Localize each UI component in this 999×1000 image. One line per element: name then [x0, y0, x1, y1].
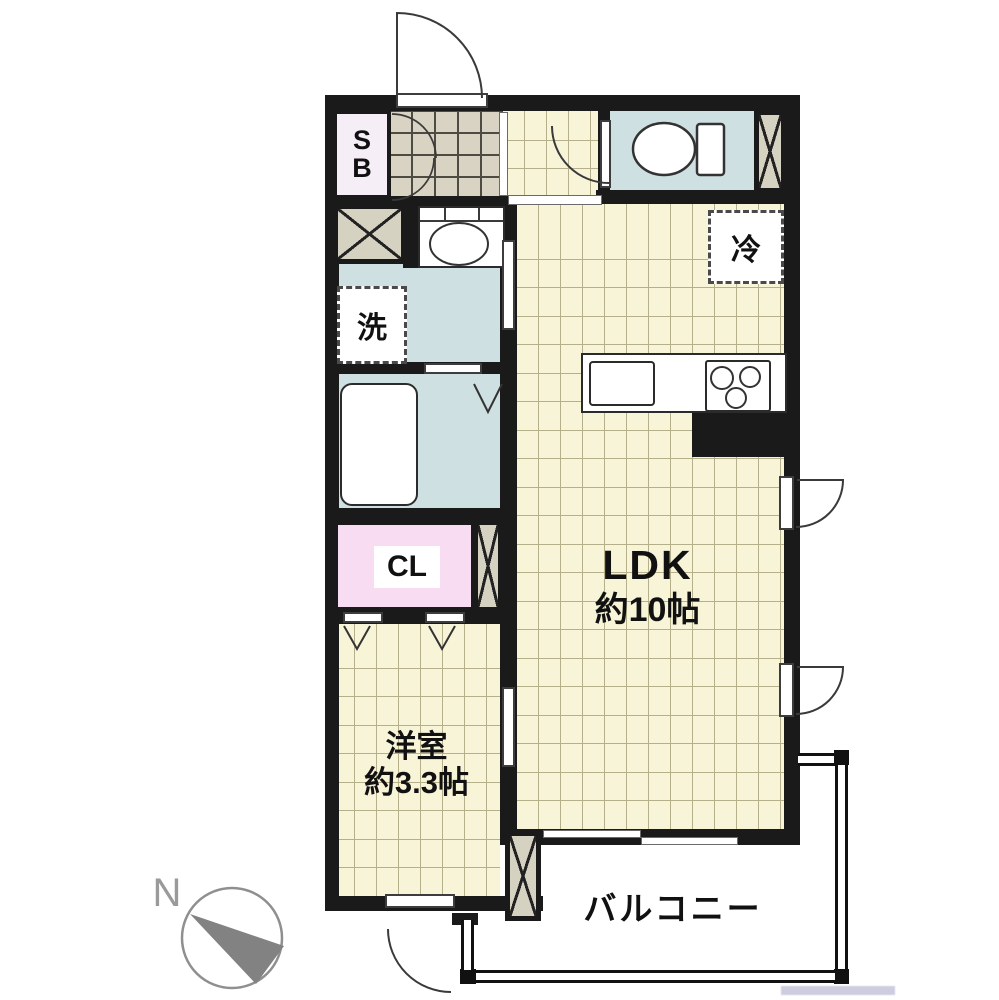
shoe-box-letter-s: S: [353, 126, 371, 154]
western-room-window-leaf: [385, 894, 455, 908]
ldk-window-swing-arc-upper: [796, 480, 843, 527]
hallway-floor: [503, 110, 598, 197]
pillar-hatch-closet-right: [473, 520, 503, 612]
ldk-window-swing-arc-lower: [796, 667, 843, 714]
shoe-box-label: S B: [335, 112, 389, 196]
balcony-rail-corner-bottom-left: [460, 969, 476, 984]
wall-right: [784, 95, 800, 845]
compass-needle: [190, 914, 284, 984]
balcony-label: バルコニー: [538, 886, 808, 926]
balcony-rail-corner-top-right: [834, 750, 849, 765]
toilet-room-floor: [610, 110, 754, 192]
balcony-rail-top: [798, 753, 836, 766]
stove: [705, 360, 771, 412]
washroom-door-leaf: [502, 240, 515, 330]
entrance-tile-floor: [390, 110, 505, 198]
entrance-door-leaf: [396, 93, 488, 108]
closet-door-leaf-right: [425, 612, 465, 623]
western-room-area-label: 約3.3帖: [325, 761, 508, 797]
entrance-step: [499, 112, 508, 196]
refrigerator-label: 冷: [708, 210, 784, 284]
ldk-floor: [517, 204, 784, 829]
compass-north-label: N: [145, 870, 189, 916]
ldk-window-leaf-lower: [779, 663, 794, 717]
western-room-window-swing-arc: [388, 929, 451, 992]
entrance-door-swing-arc: [397, 13, 482, 98]
wall-top: [325, 95, 790, 111]
hallway-ldk-threshold: [508, 195, 602, 205]
kitchen-sink: [589, 361, 655, 406]
closet-door-leaf-left: [343, 612, 383, 623]
balcony-sliding-window-panel-2: [641, 837, 738, 845]
western-room-sliding-door-leaf: [502, 687, 515, 767]
kitchen-end-panel: [692, 413, 787, 457]
ldk-label: LDK: [540, 543, 755, 587]
ldk-window-leaf-upper: [779, 476, 794, 530]
watermark: [781, 986, 895, 995]
balcony-sliding-window-panel-1: [543, 830, 641, 838]
balcony-rail-right: [835, 765, 848, 971]
bath-door-leaf: [424, 363, 482, 374]
balcony-rail-left: [461, 920, 474, 970]
compass-circle: [182, 888, 282, 988]
bathtub: [340, 383, 418, 506]
washer-label: 洗: [337, 286, 407, 364]
floor-plan: S B CL 洗 冷 LDK 約10帖 洋室 約3.3帖 バルコニー N: [0, 0, 999, 1000]
closet-label: CL: [374, 546, 440, 588]
ldk-area-label: 約10帖: [540, 586, 755, 626]
pillar-hatch-top-right: [754, 110, 786, 193]
balcony-rail-corner-bottom-right: [834, 969, 849, 984]
shoe-box-letter-b: B: [352, 154, 372, 182]
pillar-hatch-top-left: [333, 204, 406, 264]
washstand-counter: [418, 206, 505, 268]
toilet-door-leaf: [600, 120, 611, 188]
pillar-hatch-balcony-corner: [505, 831, 541, 921]
balcony-rail-bottom: [475, 970, 835, 983]
